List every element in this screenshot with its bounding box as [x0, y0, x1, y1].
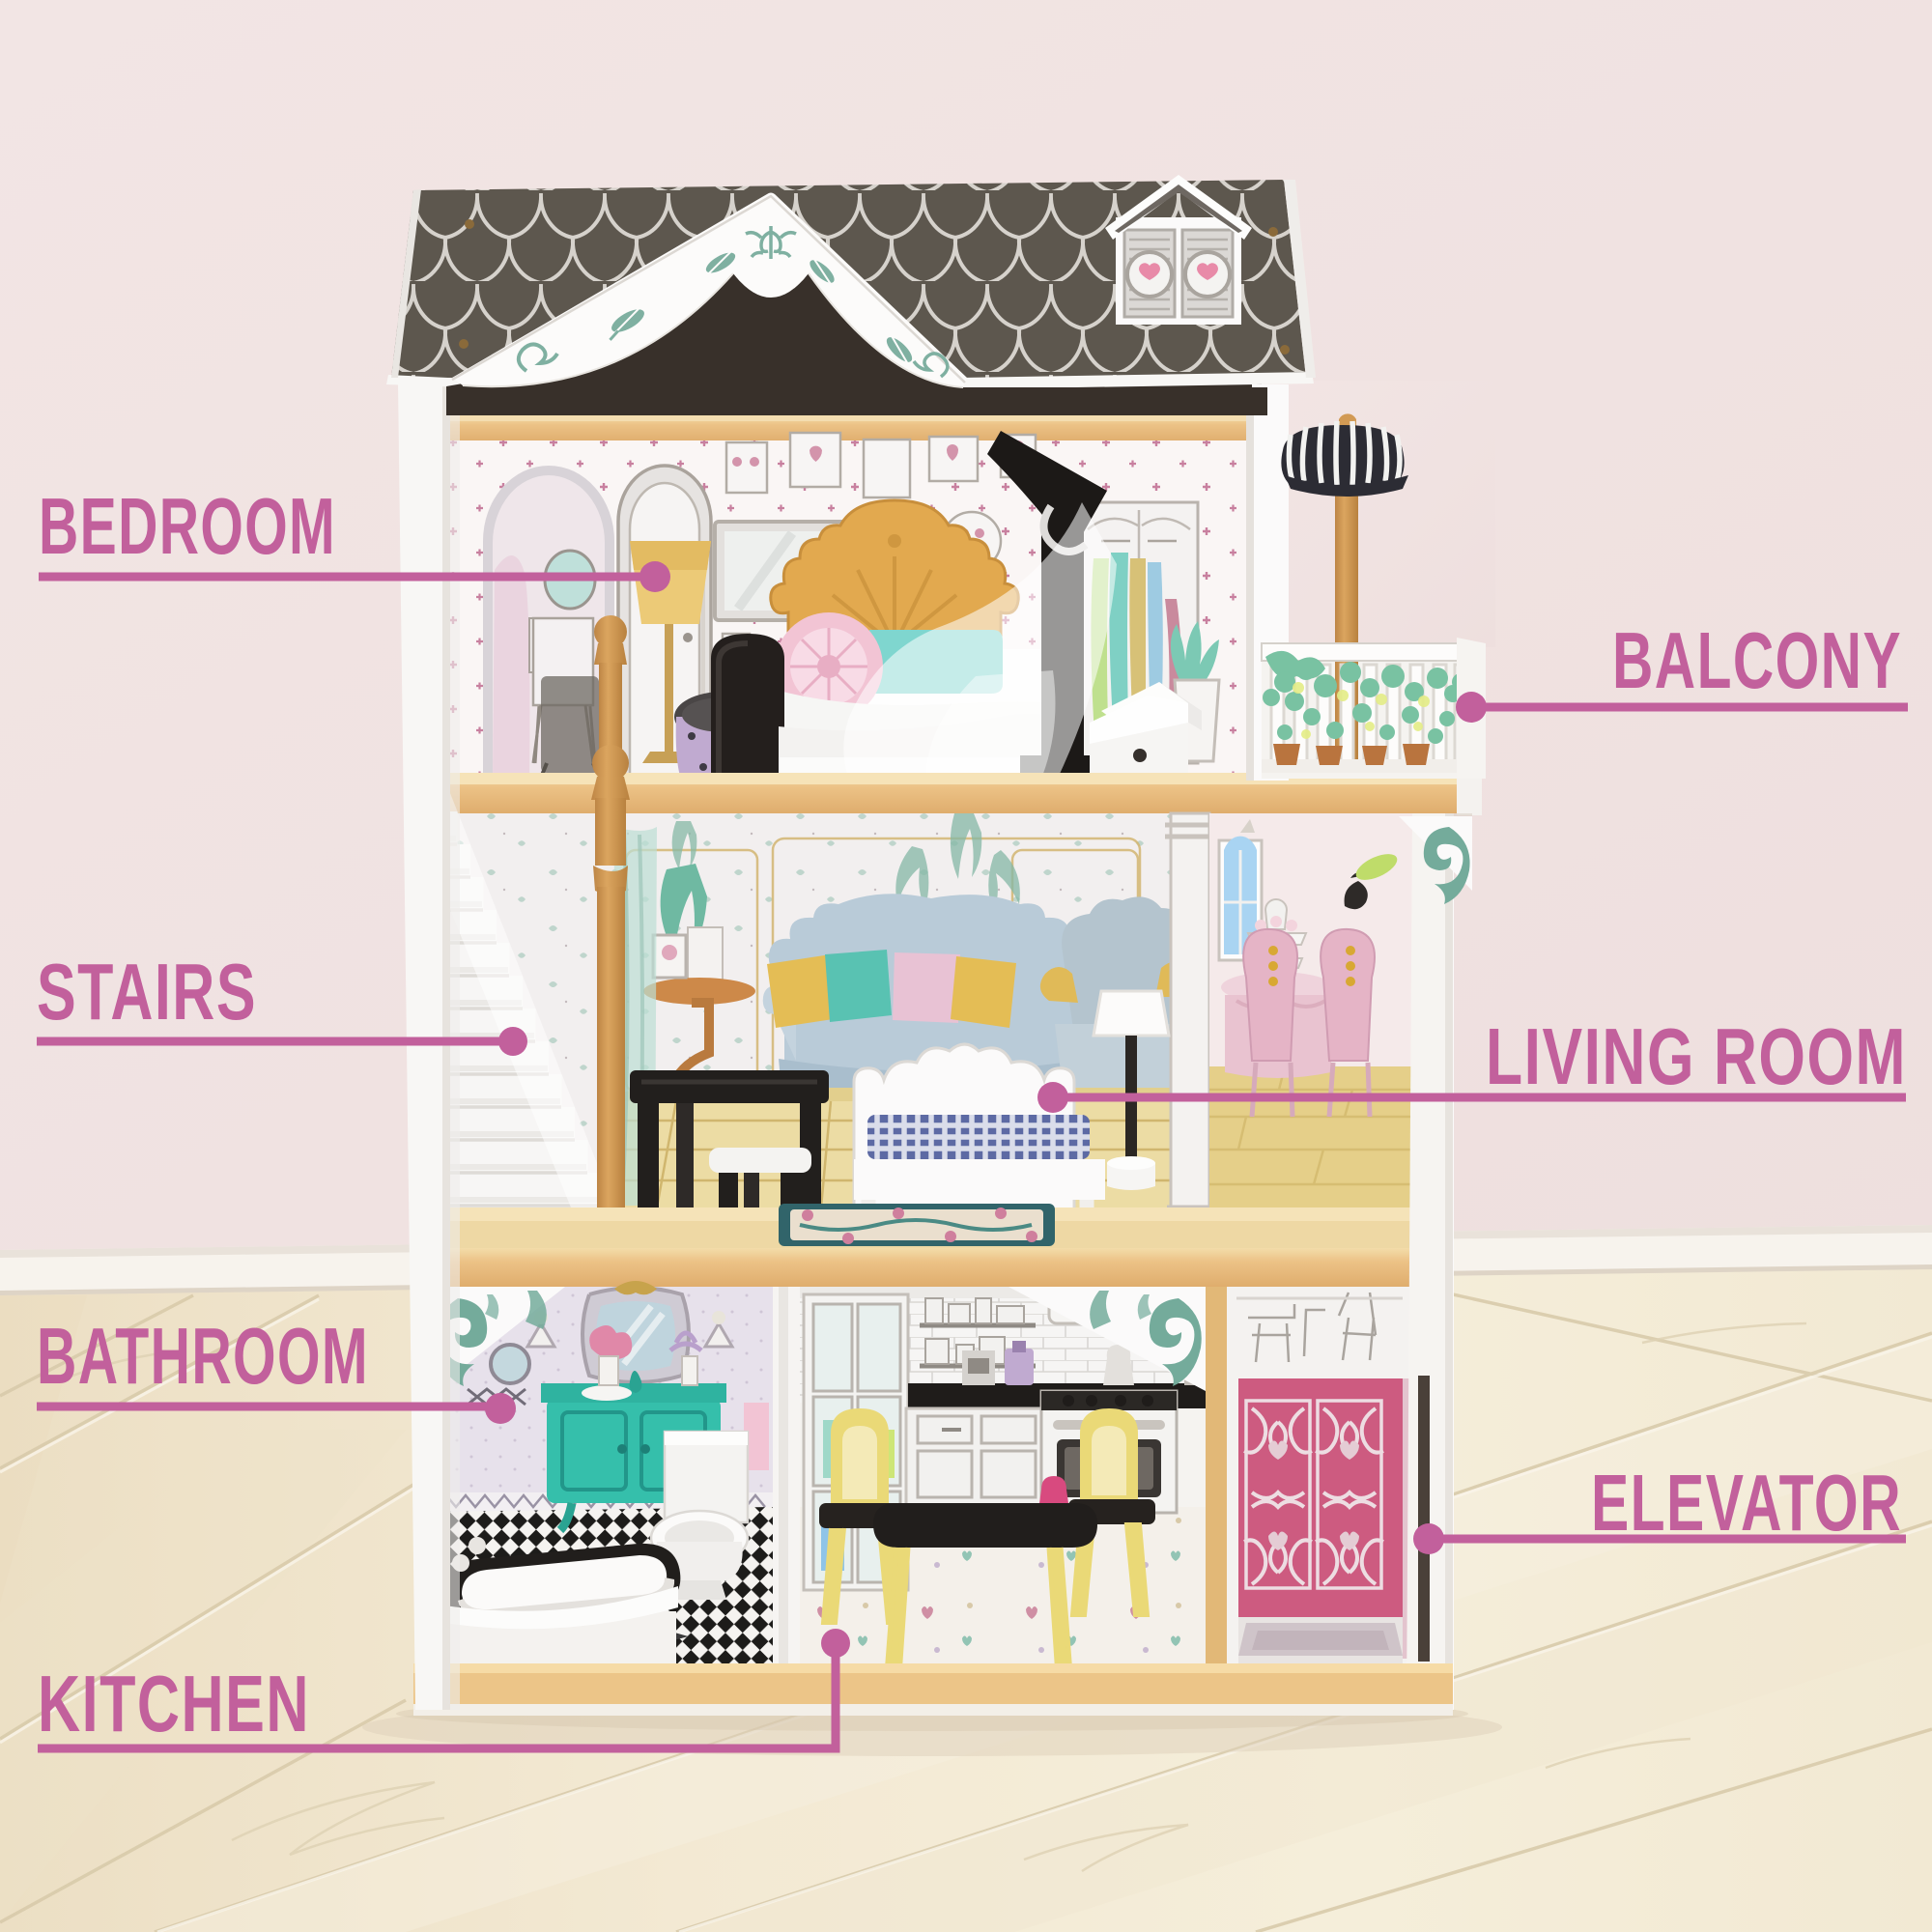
svg-text:BEDROOM: BEDROOM [39, 481, 336, 571]
svg-text:KITCHEN: KITCHEN [38, 1659, 310, 1748]
svg-text:STAIRS: STAIRS [37, 947, 257, 1037]
svg-text:LIVING ROOM: LIVING ROOM [1486, 1011, 1907, 1101]
svg-text:BALCONY: BALCONY [1612, 615, 1902, 705]
svg-text:BATHROOM: BATHROOM [37, 1311, 369, 1401]
svg-text:ELEVATOR: ELEVATOR [1591, 1458, 1902, 1548]
